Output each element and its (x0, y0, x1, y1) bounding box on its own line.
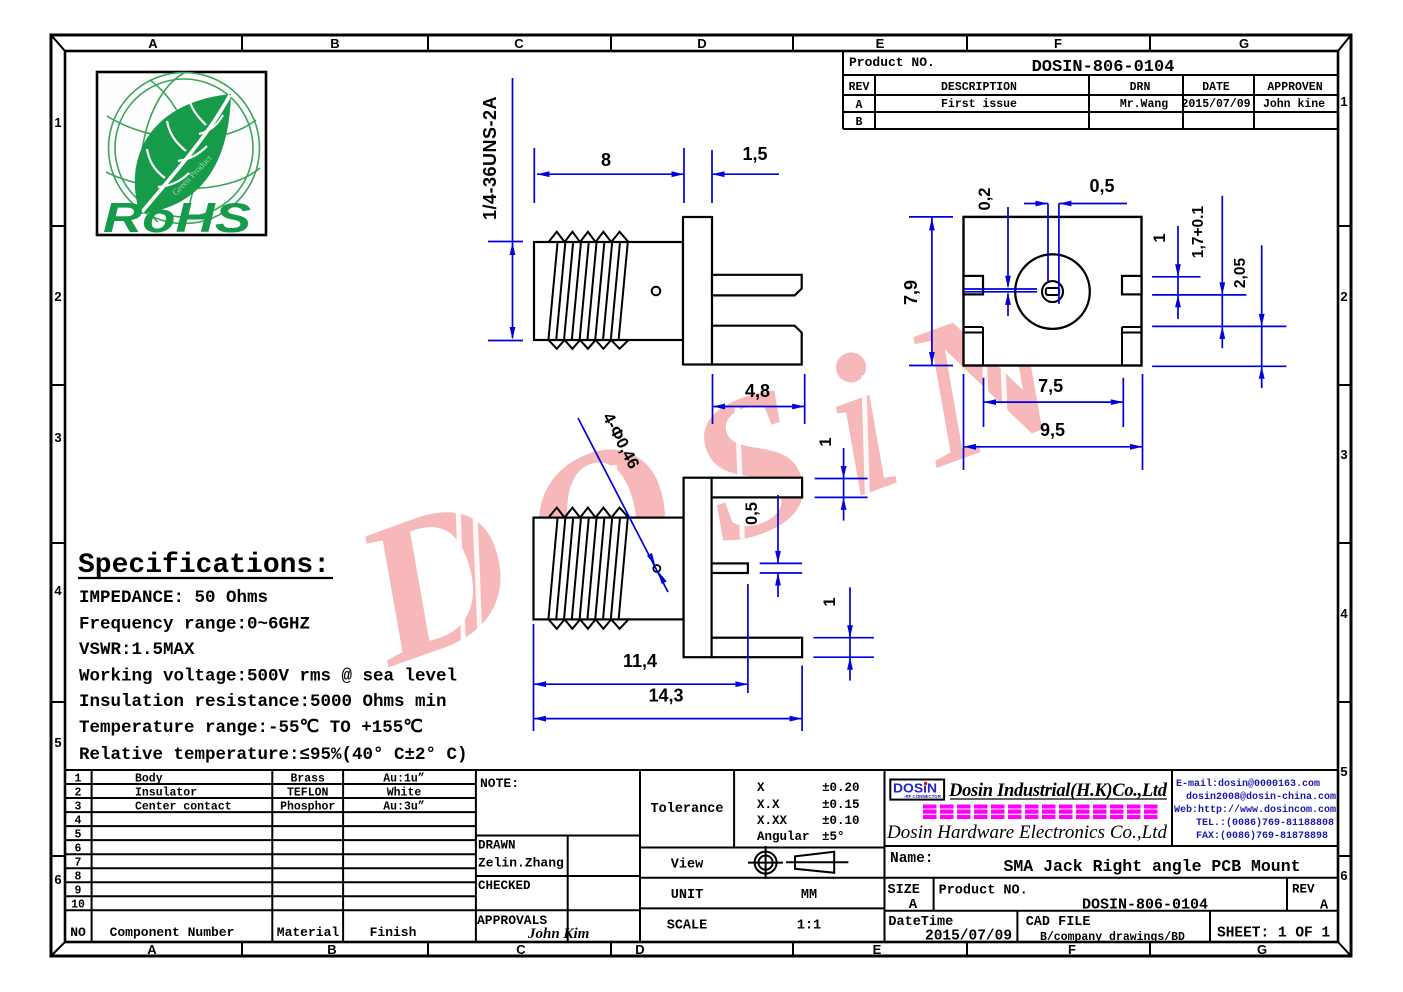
svg-text:X.XX: X.XX (757, 814, 788, 828)
svg-text:8: 8 (75, 871, 82, 884)
svg-text:First issue: First issue (941, 98, 1017, 111)
svg-text:SCALE: SCALE (667, 919, 708, 934)
svg-text:1: 1 (54, 115, 61, 130)
svg-text:8: 8 (601, 150, 611, 170)
svg-text:Working voltage:500V rms @ sea: Working voltage:500V rms @ sea level (79, 667, 457, 687)
svg-text:E: E (873, 942, 882, 957)
svg-text:0,5: 0,5 (743, 502, 761, 525)
svg-text:UNIT: UNIT (671, 888, 703, 903)
svg-text:A: A (1320, 899, 1329, 914)
svg-text:1: 1 (1151, 233, 1169, 242)
svg-text:1: 1 (1340, 94, 1347, 109)
svg-text:John Kim: John Kim (527, 926, 589, 942)
svg-text:Insulator: Insulator (135, 787, 197, 800)
svg-text:DOSIN-806-0104: DOSIN-806-0104 (1082, 897, 1208, 914)
svg-text:G: G (1239, 36, 1249, 51)
svg-text:Product NO.: Product NO. (849, 55, 935, 70)
svg-text:F: F (1054, 36, 1062, 51)
svg-text:D: D (635, 942, 644, 957)
svg-text:0,5: 0,5 (1089, 176, 1114, 196)
svg-text:1: 1 (817, 437, 835, 446)
svg-text:E: E (876, 36, 885, 51)
svg-text:SIZE: SIZE (888, 883, 920, 898)
svg-text:2: 2 (1340, 289, 1347, 304)
svg-text:Body: Body (135, 773, 163, 786)
svg-text:Material: Material (277, 925, 340, 940)
svg-text:X.X: X.X (757, 798, 780, 812)
svg-text:Phosphor: Phosphor (280, 801, 335, 814)
svg-text:APPROVEN: APPROVEN (1267, 81, 1322, 94)
svg-text:Web:http://www.dosincom.com: Web:http://www.dosincom.com (1174, 804, 1336, 816)
svg-text:6: 6 (54, 872, 61, 887)
svg-text:7,5: 7,5 (1038, 376, 1063, 396)
svg-text:9,5: 9,5 (1040, 420, 1065, 440)
svg-text:2,05: 2,05 (1232, 258, 1249, 289)
svg-text:B: B (327, 942, 336, 957)
svg-text:±0.20: ±0.20 (822, 781, 860, 795)
svg-text:Dosin Hardware Electronics Co.: Dosin Hardware Electronics Co.,Ltd (886, 822, 1168, 843)
svg-text:C: C (514, 36, 524, 51)
svg-text:NO: NO (70, 925, 86, 940)
svg-text:White: White (387, 787, 422, 800)
svg-text:3: 3 (54, 430, 61, 445)
svg-text:DATE: DATE (1202, 81, 1230, 94)
svg-text:5: 5 (1340, 764, 1347, 779)
svg-text:dosin2008@dosin-china.com: dosin2008@dosin-china.com (1186, 791, 1336, 803)
svg-text:DESCRIPTION: DESCRIPTION (941, 81, 1017, 94)
svg-text:Zelin.Zhang: Zelin.Zhang (478, 856, 564, 871)
svg-text:REV: REV (849, 81, 870, 94)
svg-text:4,8: 4,8 (745, 381, 770, 401)
svg-text:10: 10 (71, 899, 85, 912)
svg-text:14,3: 14,3 (648, 686, 683, 706)
svg-text:2015/07/09: 2015/07/09 (1181, 98, 1250, 111)
svg-text:Insulation resistance:5000 Ohm: Insulation resistance:5000 Ohms min (79, 692, 447, 712)
svg-text:Tolerance: Tolerance (651, 802, 724, 817)
svg-text:1: 1 (75, 773, 82, 786)
svg-text:7: 7 (75, 857, 82, 870)
svg-text:1: 1 (821, 597, 839, 606)
svg-text:NOTE:: NOTE: (480, 776, 519, 791)
svg-text:Dosin Industrial(H.K)Co.,Ltd: Dosin Industrial(H.K)Co.,Ltd (948, 781, 1168, 801)
svg-text:4: 4 (75, 815, 82, 828)
svg-text:Au:3u”: Au:3u” (383, 801, 425, 814)
svg-text:A: A (909, 897, 918, 913)
svg-text:C: C (516, 942, 526, 957)
svg-text:Mr.Wang: Mr.Wang (1120, 98, 1168, 111)
svg-text:X: X (757, 781, 765, 795)
svg-text:TEFLON: TEFLON (287, 787, 329, 800)
svg-text:TEL.:(0086)769-81188808: TEL.:(0086)769-81188808 (1196, 817, 1334, 829)
svg-text:5: 5 (54, 735, 61, 750)
svg-text:John kine: John kine (1263, 98, 1325, 111)
svg-text:DRAWN: DRAWN (478, 839, 516, 853)
svg-text:FAX:(0086)769-81878898: FAX:(0086)769-81878898 (1196, 830, 1328, 842)
svg-text:Finish: Finish (370, 925, 417, 940)
svg-text:D: D (697, 36, 706, 51)
svg-text:6: 6 (1340, 868, 1347, 883)
svg-text:MM: MM (801, 888, 817, 903)
svg-text:11,4: 11,4 (623, 651, 657, 671)
svg-text:3: 3 (1340, 447, 1347, 462)
svg-text:CAD FILE: CAD FILE (1026, 915, 1091, 930)
svg-text:4: 4 (54, 583, 62, 598)
svg-text:G: G (1257, 942, 1267, 957)
svg-text:IMPEDANCE: 50 Ohms: IMPEDANCE: 50 Ohms (79, 588, 268, 608)
svg-text:A: A (147, 942, 157, 957)
svg-text:A: A (148, 36, 158, 51)
svg-text:A: A (856, 99, 863, 112)
svg-text:2: 2 (75, 787, 82, 800)
svg-text:RoHS: RoHS (103, 194, 251, 241)
svg-text:0,2: 0,2 (976, 188, 994, 211)
svg-text:Relative temperature:≤95%(40°: Relative temperature:≤95%(40° C±2° C) (79, 745, 468, 765)
svg-text:Component Number: Component Number (110, 925, 235, 940)
svg-text:7,9: 7,9 (901, 280, 921, 305)
svg-text:2: 2 (54, 289, 61, 304)
svg-text:F: F (1068, 942, 1076, 957)
svg-text:Brass: Brass (290, 773, 325, 786)
svg-text:1,5: 1,5 (742, 144, 767, 164)
svg-text:Frequency range:0~6GHZ: Frequency range:0~6GHZ (79, 615, 310, 635)
svg-text:1,7+0.1: 1,7+0.1 (1190, 206, 1207, 259)
svg-text:SMA Jack Right angle PCB Mount: SMA Jack Right angle PCB Mount (1003, 857, 1300, 876)
svg-text:Name:: Name: (890, 851, 934, 867)
svg-text:DOSIN-806-0104: DOSIN-806-0104 (1032, 58, 1175, 77)
svg-text:View: View (671, 858, 704, 873)
svg-text:SHEET: 1 OF 1: SHEET: 1 OF 1 (1217, 926, 1330, 942)
svg-text:B/company drawings/BD: B/company drawings/BD (1040, 931, 1185, 944)
svg-text:±5°: ±5° (822, 830, 845, 844)
svg-text:-RF CONNECTOR: -RF CONNECTOR (904, 794, 942, 799)
svg-text:E-mail:dosin@0000163.com: E-mail:dosin@0000163.com (1176, 778, 1320, 790)
svg-text:Temperature range:-55℃ TO +155: Temperature range:-55℃ TO +155℃ (79, 718, 423, 738)
svg-text:5: 5 (75, 829, 82, 842)
svg-text:VSWR:1.5MAX: VSWR:1.5MAX (79, 640, 195, 660)
svg-text:B: B (330, 36, 339, 51)
svg-text:9: 9 (75, 885, 82, 898)
svg-text:±0.15: ±0.15 (822, 798, 860, 812)
svg-text:CHECKED: CHECKED (478, 879, 531, 893)
svg-text:B: B (856, 116, 863, 129)
svg-text:DRN: DRN (1130, 81, 1151, 94)
svg-text:2015/07/09: 2015/07/09 (925, 929, 1012, 945)
svg-text:Product NO.: Product NO. (939, 884, 1028, 899)
svg-text:Au:1u”: Au:1u” (383, 773, 425, 786)
svg-text:REV: REV (1292, 883, 1315, 897)
svg-text:Angular: Angular (757, 830, 810, 844)
svg-text:Specifications:: Specifications: (78, 550, 330, 581)
svg-text:1/4-36UNS-2A: 1/4-36UNS-2A (480, 96, 500, 220)
svg-text:Center contact: Center contact (135, 801, 232, 814)
svg-text:4: 4 (1340, 606, 1348, 621)
svg-text:±0.10: ±0.10 (822, 814, 860, 828)
svg-text:1:1: 1:1 (797, 919, 821, 934)
svg-text:3: 3 (75, 801, 82, 814)
svg-text:6: 6 (75, 843, 82, 856)
